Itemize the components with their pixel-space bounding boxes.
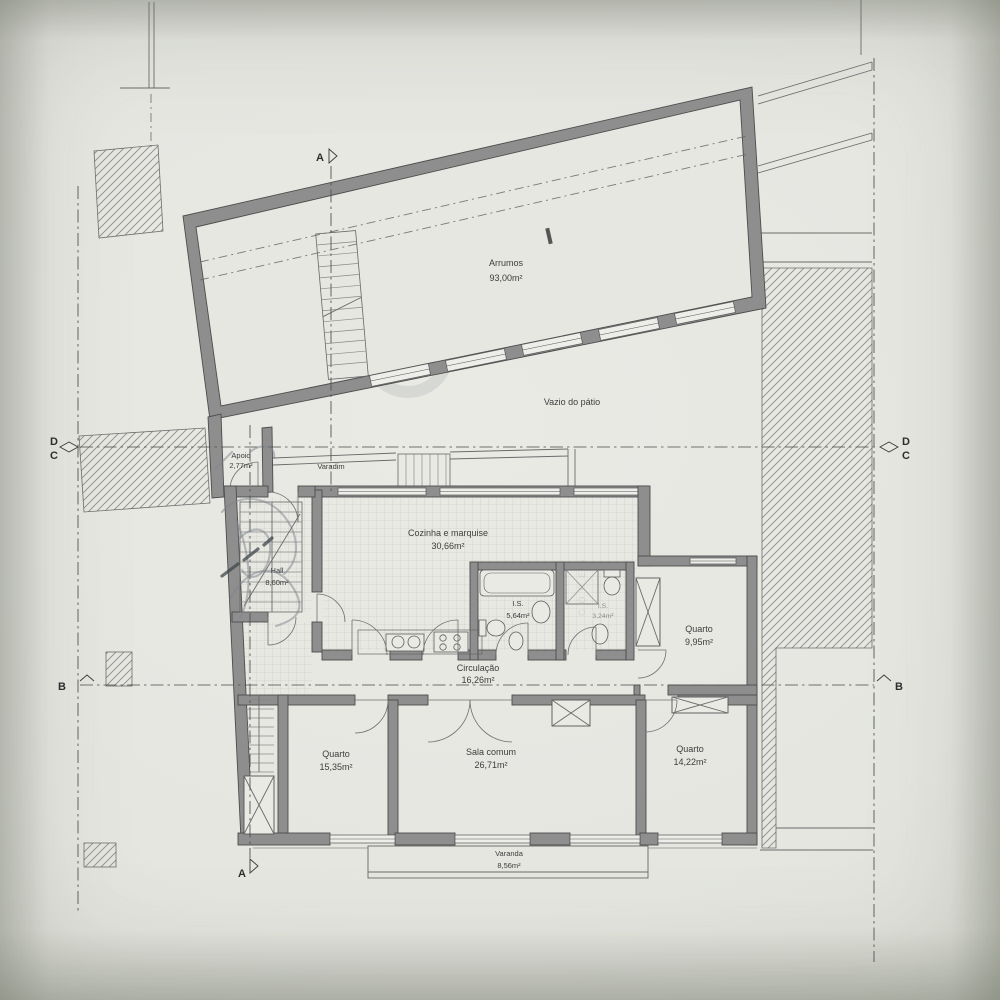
room-label-sala: Sala comum <box>466 747 516 757</box>
room-area-is2: 3,24m² <box>592 613 614 620</box>
room-label-varanda: Varanda <box>495 849 524 858</box>
room-label-quarto2: Quarto <box>322 749 350 759</box>
section-marker-b-right: B <box>895 681 903 693</box>
room-label-arrumos: Arrumos <box>489 258 524 268</box>
room-area-quarto2: 15,35m² <box>319 762 352 772</box>
room-area-is1: 5,64m² <box>506 611 530 620</box>
room-label-quarto1: Quarto <box>685 624 713 634</box>
room-area-cozinha: 30,66m² <box>431 541 464 551</box>
section-marker-c-left: C <box>50 450 58 462</box>
apoio-right-wall <box>262 427 273 493</box>
section-marker-c-right: C <box>902 450 910 462</box>
section-marker-b-right-icon <box>877 675 891 681</box>
room-label-cozinha: Cozinha e marquise <box>408 528 488 538</box>
hatch-top-left <box>94 145 163 238</box>
room-area-varanda: 8,56m² <box>497 861 521 870</box>
room-area-arrumos: 93,00m² <box>489 273 522 283</box>
room-area-quarto3: 14,22m² <box>673 757 706 767</box>
room-label-circulacao: Circulação <box>457 663 500 673</box>
floor-plan-photo: ® CORES Arrumos 93,00m² Vazio do pátio <box>0 0 1000 1000</box>
hall-lower-floor <box>240 622 312 695</box>
room-area-circulacao: 16,26m² <box>461 675 494 685</box>
dwelling: Cozinha e marquise 30,66m² Hall 8,60m² I… <box>224 486 757 878</box>
hatch-right <box>762 268 872 848</box>
section-marker-dc-right-icon <box>880 442 898 452</box>
section-marker-d-right: D <box>902 436 910 448</box>
floor-plan-svg: ® CORES Arrumos 93,00m² Vazio do pátio <box>0 0 1000 1000</box>
hatch-left-b <box>106 652 132 686</box>
room-area-sala: 26,71m² <box>474 760 507 770</box>
room-label-apoio: Apoio <box>231 451 250 460</box>
arrumos-building: Arrumos 93,00m² <box>183 87 766 420</box>
section-marker-dc-left-icon <box>60 442 78 452</box>
room-label-is1: I.S. <box>512 599 523 608</box>
section-marker-a-bottom: A <box>238 868 246 880</box>
room-area-quarto1: 9,95m² <box>685 637 713 647</box>
section-marker-a-bottom-icon <box>250 859 258 873</box>
section-marker-a-top-icon <box>329 149 337 163</box>
hatch-bottom-left <box>84 843 116 867</box>
section-marker-d-left: D <box>50 436 58 448</box>
section-marker-b-left-icon <box>80 675 94 681</box>
section-marker-b-left: B <box>58 681 66 693</box>
section-marker-a-top: A <box>316 152 324 164</box>
hatch-left-mid <box>79 428 210 512</box>
room-label-is2: I.S. <box>598 603 608 610</box>
apoio-left-wall <box>208 414 224 498</box>
room-label-vazio: Vazio do pátio <box>544 397 600 407</box>
room-label-quarto3: Quarto <box>676 744 704 754</box>
